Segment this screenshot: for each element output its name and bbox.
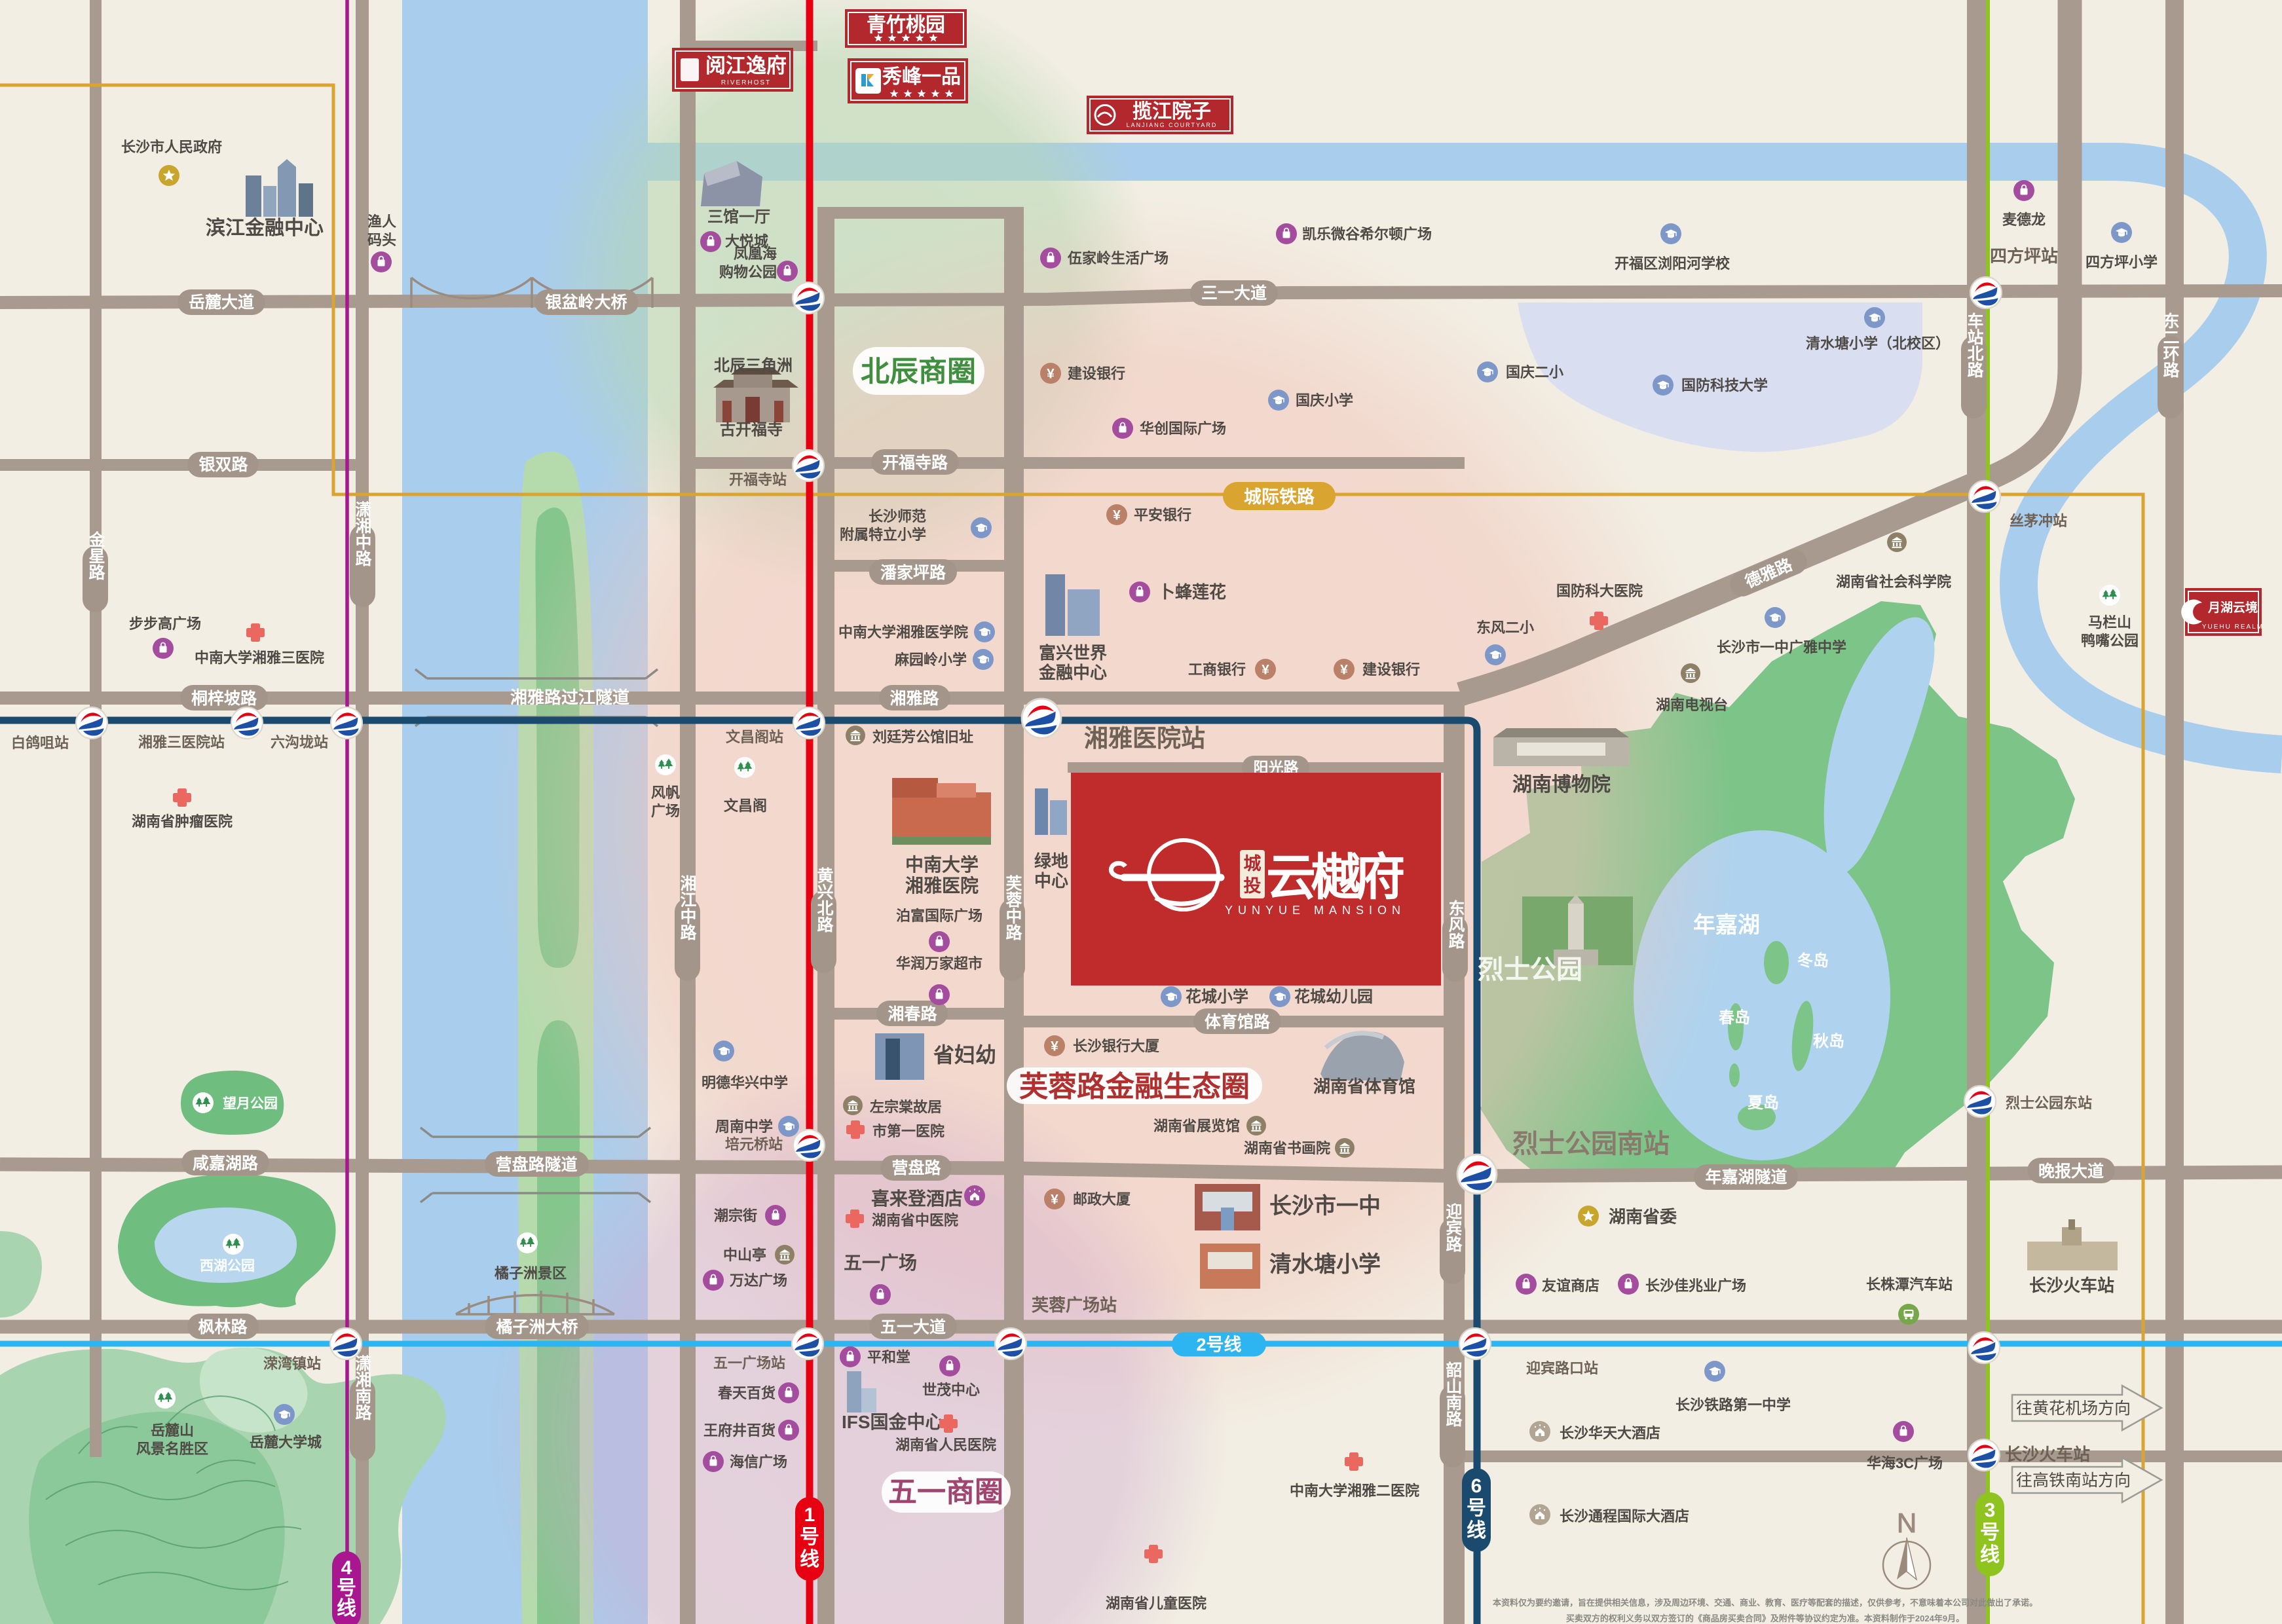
svg-text:潘家坪路: 潘家坪路 — [880, 563, 946, 582]
svg-text:文昌阁站: 文昌阁站 — [726, 729, 783, 745]
svg-text:线: 线 — [800, 1549, 819, 1570]
svg-text:卜蜂莲花: 卜蜂莲花 — [1158, 582, 1226, 602]
svg-text:白鸽咀站: 白鸽咀站 — [11, 735, 69, 751]
svg-text:线: 线 — [337, 1598, 356, 1619]
svg-text:橘子洲大桥: 橘子洲大桥 — [496, 1318, 578, 1337]
svg-text:华创国际广场: 华创国际广场 — [1140, 420, 1226, 437]
svg-text:中南大学: 中南大学 — [905, 854, 979, 875]
svg-text:长株潭汽车站: 长株潭汽车站 — [1866, 1276, 1953, 1293]
svg-text:东二环路: 东二环路 — [2161, 312, 2180, 378]
svg-text:省妇幼: 省妇幼 — [933, 1043, 996, 1067]
svg-text:四方坪站: 四方坪站 — [1990, 246, 2058, 266]
svg-text:富兴世界: 富兴世界 — [1039, 643, 1107, 663]
svg-text:湖南省儿童医院: 湖南省儿童医院 — [1106, 1595, 1206, 1612]
svg-text:芙蓉中路: 芙蓉中路 — [1003, 875, 1022, 940]
svg-text:东风路: 东风路 — [1446, 899, 1465, 949]
svg-text:长沙通程国际大酒店: 长沙通程国际大酒店 — [1560, 1508, 1689, 1524]
svg-text:湖南省展览馆: 湖南省展览馆 — [1153, 1118, 1240, 1134]
svg-text:建设银行: 建设银行 — [1362, 661, 1420, 678]
svg-text:长沙华天大酒店: 长沙华天大酒店 — [1560, 1425, 1660, 1441]
svg-text:国庆二小: 国庆二小 — [1506, 364, 1563, 380]
svg-text:滨江金融中心: 滨江金融中心 — [206, 217, 324, 239]
svg-text:4: 4 — [341, 1557, 352, 1579]
svg-text:2号线: 2号线 — [1196, 1335, 1241, 1355]
svg-text:溁湾镇站: 溁湾镇站 — [263, 1356, 321, 1372]
svg-text:花城小学: 花城小学 — [1186, 987, 1248, 1006]
svg-text:泊富国际广场: 泊富国际广场 — [896, 908, 982, 924]
svg-text:东风二小: 东风二小 — [1476, 619, 1534, 636]
svg-text:长沙市一中广雅中学: 长沙市一中广雅中学 — [1717, 639, 1846, 655]
svg-text:鸭嘴公园: 鸭嘴公园 — [2081, 633, 2139, 649]
svg-text:枫林路: 枫林路 — [198, 1318, 248, 1337]
svg-text:号: 号 — [1980, 1522, 2000, 1543]
svg-text:凤凰海: 凤凰海 — [734, 246, 777, 262]
svg-text:文昌阁: 文昌阁 — [724, 798, 767, 814]
svg-text:营盘路隧道: 营盘路隧道 — [495, 1155, 577, 1174]
svg-text:YUEHU REALM: YUEHU REALM — [2202, 623, 2264, 631]
svg-text:中心: 中心 — [1034, 871, 1068, 891]
svg-text:长沙银行大厦: 长沙银行大厦 — [1073, 1038, 1159, 1054]
svg-text:湖南省肿瘤医院: 湖南省肿瘤医院 — [132, 813, 233, 830]
svg-text:咸嘉湖路: 咸嘉湖路 — [193, 1154, 259, 1173]
svg-text:金融中心: 金融中心 — [1038, 663, 1107, 682]
svg-text:风景名胜区: 风景名胜区 — [136, 1441, 208, 1457]
svg-text:号: 号 — [800, 1526, 819, 1548]
svg-text:国庆小学: 国庆小学 — [1296, 392, 1353, 409]
svg-text:秀峰一品: 秀峰一品 — [882, 66, 961, 88]
svg-text:海信广场: 海信广场 — [730, 1454, 787, 1470]
svg-text:RIVERHOST: RIVERHOST — [721, 79, 771, 86]
svg-text:建设银行: 建设银行 — [1068, 365, 1125, 382]
svg-text:青竹桃园: 青竹桃园 — [867, 14, 945, 36]
svg-text:伍家岭生活广场: 伍家岭生活广场 — [1067, 250, 1169, 267]
svg-text:金星路: 金星路 — [86, 530, 106, 580]
svg-text:投: 投 — [1244, 876, 1262, 896]
svg-text:中南大学湘雅医学院: 中南大学湘雅医学院 — [838, 624, 968, 640]
svg-text:五一大道: 五一大道 — [880, 1318, 946, 1337]
svg-text:晚报大道: 晚报大道 — [2038, 1162, 2104, 1181]
svg-text:云樾府: 云樾府 — [1266, 850, 1404, 906]
svg-text:花城幼儿园: 花城幼儿园 — [1294, 987, 1373, 1006]
svg-text:市第一医院: 市第一医院 — [872, 1123, 945, 1139]
svg-text:渔人: 渔人 — [367, 213, 396, 230]
svg-text:湖南省中医院: 湖南省中医院 — [872, 1212, 958, 1228]
svg-text:国防科大医院: 国防科大医院 — [1556, 583, 1643, 599]
svg-text:培元桥站: 培元桥站 — [725, 1136, 783, 1153]
svg-text:阅江逸府: 阅江逸府 — [705, 54, 787, 77]
svg-text:烈士公园南站: 烈士公园南站 — [1512, 1130, 1670, 1158]
svg-text:湘春路: 湘春路 — [888, 1005, 937, 1024]
svg-text:湘雅医院站: 湘雅医院站 — [1084, 725, 1205, 752]
svg-text:岳麓大学城: 岳麓大学城 — [250, 1434, 322, 1450]
svg-text:城: 城 — [1244, 854, 1262, 874]
svg-text:车站北路: 车站北路 — [1965, 312, 1984, 378]
svg-text:潇湘中路: 潇湘中路 — [353, 501, 372, 566]
svg-text:清水塘小学（北校区）: 清水塘小学（北校区） — [1806, 335, 1950, 352]
svg-text:华海3C广场: 华海3C广场 — [1867, 1455, 1943, 1471]
svg-text:湘雅三医院站: 湘雅三医院站 — [138, 734, 225, 750]
svg-text:线: 线 — [1980, 1544, 2000, 1566]
svg-text:华润万家超市: 华润万家超市 — [896, 955, 982, 972]
svg-text:银双路: 银双路 — [198, 456, 248, 474]
svg-text:明德华兴中学: 明德华兴中学 — [701, 1075, 788, 1091]
svg-text:五一商圈: 五一商圈 — [888, 1476, 1003, 1508]
svg-text:岳麓大道: 岳麓大道 — [189, 293, 254, 312]
svg-text:芙蓉路金融生态圈: 芙蓉路金融生态圈 — [1019, 1071, 1250, 1103]
svg-text:望月公园: 望月公园 — [223, 1096, 278, 1111]
svg-text:三馆一厅: 三馆一厅 — [707, 208, 770, 226]
svg-text:烈士公园: 烈士公园 — [1478, 955, 1582, 984]
svg-text:万达广场: 万达广场 — [729, 1272, 787, 1289]
svg-text:本资料仅为要约邀请，旨在提供相关信息，涉及周边环境、交通、商: 本资料仅为要约邀请，旨在提供相关信息，涉及周边环境、交通、商业、教育、医疗等配套… — [1493, 1598, 2038, 1608]
svg-text:平和堂: 平和堂 — [867, 1349, 910, 1365]
svg-text:3: 3 — [1985, 1500, 1996, 1521]
svg-text:四方坪小学: 四方坪小学 — [2086, 254, 2158, 270]
svg-text:左宗棠故居: 左宗棠故居 — [870, 1099, 942, 1115]
svg-text:秋岛: 秋岛 — [1813, 1032, 1844, 1050]
svg-text:岳麓山: 岳麓山 — [151, 1422, 194, 1439]
svg-text:往高铁南站方向: 往高铁南站方向 — [2016, 1471, 2131, 1490]
svg-text:IFS国金中心: IFS国金中心 — [842, 1411, 944, 1432]
svg-text:开福寺站: 开福寺站 — [729, 471, 787, 488]
svg-text:三一大道: 三一大道 — [1201, 284, 1267, 303]
svg-text:年嘉湖隧道: 年嘉湖隧道 — [1705, 1168, 1787, 1187]
svg-text:购物公园: 购物公园 — [719, 264, 777, 280]
svg-text:清水塘小学: 清水塘小学 — [1269, 1251, 1381, 1277]
svg-text:附属特立小学: 附属特立小学 — [840, 526, 926, 543]
svg-text:黄兴北路: 黄兴北路 — [815, 867, 834, 932]
svg-text:平安银行: 平安银行 — [1134, 507, 1191, 523]
svg-text:长沙师范: 长沙师范 — [869, 508, 926, 525]
svg-text:号: 号 — [1467, 1498, 1486, 1519]
svg-text:工商银行: 工商银行 — [1188, 661, 1246, 678]
svg-text:揽江院子: 揽江院子 — [1132, 100, 1211, 122]
svg-text:6: 6 — [1471, 1475, 1482, 1497]
svg-text:中山亭: 中山亭 — [723, 1247, 766, 1263]
svg-text:湘雅路: 湘雅路 — [889, 689, 939, 708]
svg-text:芙蓉广场站: 芙蓉广场站 — [1032, 1295, 1117, 1315]
svg-text:开福寺路: 开福寺路 — [882, 453, 948, 472]
svg-text:夏岛: 夏岛 — [1748, 1094, 1779, 1112]
svg-text:长沙市一中: 长沙市一中 — [1269, 1193, 1381, 1219]
svg-text:桐梓坡路: 桐梓坡路 — [191, 689, 257, 708]
svg-text:迎宾路口站: 迎宾路口站 — [1526, 1360, 1598, 1376]
svg-text:五一广场站: 五一广场站 — [713, 1355, 785, 1371]
svg-text:春岛: 春岛 — [1719, 1008, 1750, 1027]
svg-text:韶山南路: 韶山南路 — [1444, 1361, 1463, 1427]
svg-text:体育馆路: 体育馆路 — [1205, 1012, 1271, 1031]
svg-text:刘廷芳公馆旧址: 刘廷芳公馆旧址 — [872, 729, 973, 745]
svg-text:长沙铁路第一中学: 长沙铁路第一中学 — [1675, 1397, 1791, 1413]
svg-text:往黄花机场方向: 往黄花机场方向 — [2016, 1399, 2131, 1418]
svg-text:长沙佳兆业广场: 长沙佳兆业广场 — [1645, 1278, 1746, 1294]
svg-text:西湖公园: 西湖公园 — [200, 1259, 255, 1274]
svg-text:橘子洲景区: 橘子洲景区 — [495, 1265, 567, 1282]
svg-text:湘江中路: 湘江中路 — [678, 874, 697, 940]
svg-text:湖南省社会科学院: 湖南省社会科学院 — [1836, 574, 1951, 590]
svg-text:冬岛: 冬岛 — [1797, 951, 1829, 970]
svg-text:凯乐微谷希尔顿广场: 凯乐微谷希尔顿广场 — [1302, 226, 1432, 242]
svg-text:烈士公园东站: 烈士公园东站 — [2006, 1095, 2092, 1111]
svg-text:步步高广场: 步步高广场 — [129, 616, 201, 632]
svg-text:营盘路: 营盘路 — [891, 1158, 941, 1177]
svg-text:绿地: 绿地 — [1034, 851, 1068, 871]
svg-text:麦德龙: 麦德龙 — [2002, 212, 2046, 228]
svg-text:号: 号 — [337, 1578, 356, 1599]
svg-text:王府井百货: 王府井百货 — [703, 1422, 776, 1439]
svg-text:风帆: 风帆 — [651, 784, 680, 801]
svg-text:湖南博物院: 湖南博物院 — [1512, 773, 1611, 796]
svg-text:湖南省书画院: 湖南省书画院 — [1244, 1140, 1330, 1156]
svg-text:潇湘南路: 潇湘南路 — [353, 1355, 372, 1420]
svg-text:银盆岭大桥: 银盆岭大桥 — [545, 293, 627, 312]
svg-text:湘雅医院: 湘雅医院 — [905, 875, 979, 896]
svg-text:1: 1 — [804, 1504, 815, 1526]
svg-text:月湖云境: 月湖云境 — [2207, 600, 2258, 615]
svg-text:马栏山: 马栏山 — [2088, 614, 2131, 631]
svg-text:中南大学湘雅三医院: 中南大学湘雅三医院 — [195, 650, 324, 666]
svg-text:古开福寺: 古开福寺 — [720, 421, 783, 439]
svg-text:城际铁路: 城际铁路 — [1244, 487, 1315, 507]
svg-text:线: 线 — [1467, 1520, 1486, 1541]
svg-text:湖南省人民医院: 湖南省人民医院 — [895, 1437, 996, 1453]
svg-text:潮宗街: 潮宗街 — [714, 1208, 757, 1224]
svg-text:长沙火车站: 长沙火车站 — [2005, 1445, 2090, 1464]
svg-text:中南大学湘雅二医院: 中南大学湘雅二医院 — [1290, 1483, 1419, 1499]
svg-text:YUNYUE MANSION: YUNYUE MANSION — [1225, 904, 1406, 917]
svg-text:LANJIANG COURTYARD: LANJIANG COURTYARD — [1127, 122, 1218, 128]
svg-text:湘雅路过江隧道: 湘雅路过江隧道 — [510, 688, 629, 707]
svg-text:丝茅冲站: 丝茅冲站 — [2010, 513, 2067, 529]
svg-text:年嘉湖: 年嘉湖 — [1693, 913, 1760, 938]
svg-text:北辰三角洲: 北辰三角洲 — [714, 356, 793, 375]
svg-text:六沟垅站: 六沟垅站 — [271, 734, 328, 750]
svg-text:国防科技大学: 国防科技大学 — [1681, 377, 1768, 394]
svg-text:友谊商店: 友谊商店 — [1542, 1278, 1599, 1294]
svg-text:北辰商圈: 北辰商圈 — [861, 356, 976, 388]
svg-text:湖南省体育馆: 湖南省体育馆 — [1313, 1077, 1415, 1096]
svg-text:开福区浏阳河学校: 开福区浏阳河学校 — [1615, 255, 1730, 272]
svg-text:买卖双方的权利义务以双方签订的《商品房买卖合同》及附件等协议: 买卖双方的权利义务以双方签订的《商品房买卖合同》及附件等协议约定为准。本资料制作… — [1566, 1614, 1964, 1623]
svg-text:麻园岭小学: 麻园岭小学 — [894, 652, 967, 668]
svg-text:码头: 码头 — [367, 232, 396, 248]
svg-text:长沙火车站: 长沙火车站 — [2029, 1276, 2114, 1295]
svg-text:长沙市人民政府: 长沙市人民政府 — [121, 139, 222, 155]
svg-text:湖南电视台: 湖南电视台 — [1656, 697, 1728, 713]
svg-text:春天百货: 春天百货 — [718, 1385, 776, 1401]
svg-text:N: N — [1897, 1507, 1917, 1538]
svg-text:周南中学: 周南中学 — [715, 1118, 773, 1135]
svg-text:世茂中心: 世茂中心 — [922, 1382, 980, 1398]
svg-text:广场: 广场 — [651, 803, 680, 819]
svg-text:迎宾路: 迎宾路 — [1444, 1202, 1463, 1252]
svg-text:邮政大厦: 邮政大厦 — [1073, 1191, 1131, 1208]
svg-text:五一广场: 五一广场 — [844, 1253, 917, 1273]
svg-text:湖南省委: 湖南省委 — [1609, 1207, 1677, 1227]
svg-text:喜来登酒店: 喜来登酒店 — [871, 1189, 963, 1209]
